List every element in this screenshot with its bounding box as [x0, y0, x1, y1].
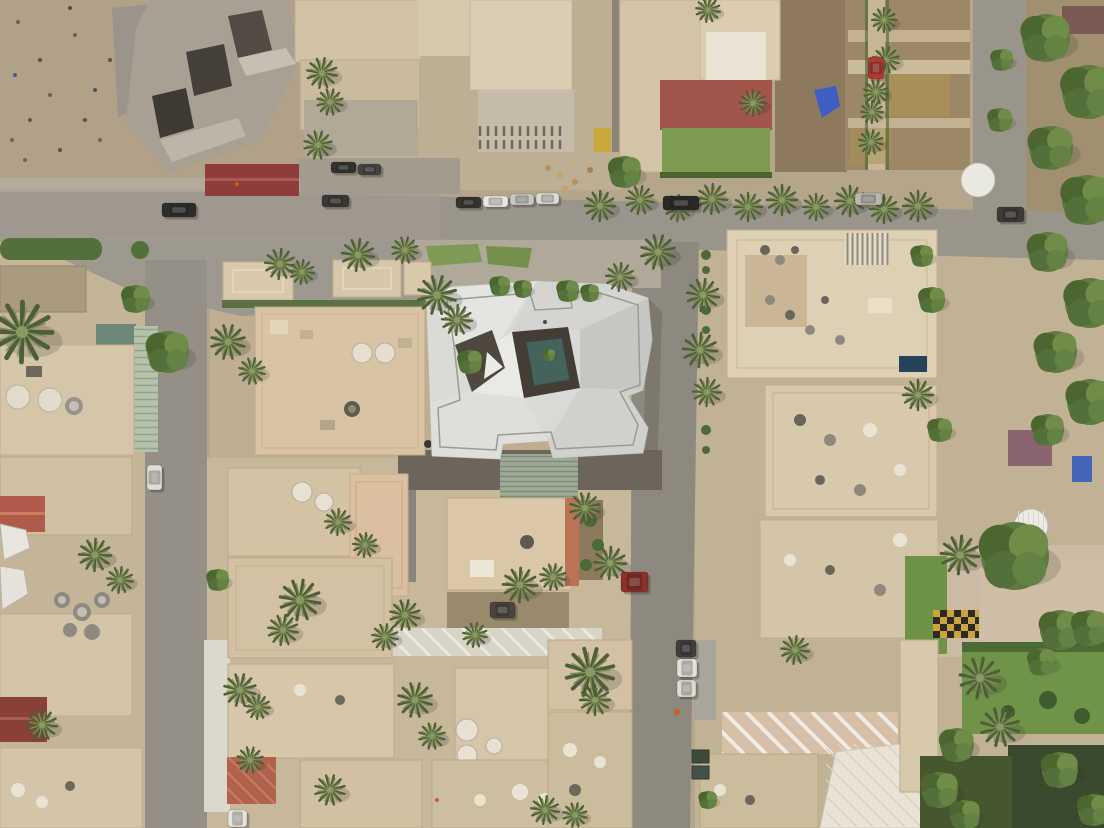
hedge-row-junction	[0, 238, 102, 260]
villa-j-whitebox	[470, 560, 494, 577]
car-darkred	[621, 572, 651, 595]
car-silver	[510, 194, 537, 208]
villa-k-tank-1	[456, 719, 478, 741]
car-white	[483, 196, 511, 210]
car-dark	[676, 640, 699, 660]
suv-silver	[855, 193, 885, 208]
water-tank-a	[6, 385, 30, 409]
villa-c-lawn	[662, 128, 770, 174]
villa-j-dish	[520, 535, 534, 549]
villa-k-tank-3	[486, 738, 502, 754]
villa-o-tank-1	[292, 482, 312, 502]
car-black	[162, 203, 199, 220]
car-white	[147, 465, 165, 493]
car-dark	[322, 195, 352, 210]
suv-dark	[997, 207, 1027, 225]
dry-grass-patch-1	[888, 74, 950, 116]
red-roof-shed-ridge	[205, 178, 299, 181]
walled-dirt-plot	[0, 266, 86, 312]
villa-h-dish-inner	[348, 405, 356, 413]
villa-c-hedge	[660, 172, 772, 178]
villa-c-terrace	[706, 32, 766, 80]
pink-roof-west-ridge	[0, 512, 45, 515]
checkered-mat	[933, 610, 979, 638]
white-walkway-v	[204, 640, 230, 812]
car-dark	[331, 162, 359, 176]
car-white	[677, 659, 700, 680]
car-courtyard	[490, 602, 518, 621]
layer-landmark	[426, 281, 662, 459]
villa-h-stair	[270, 320, 288, 334]
villa-p-stair	[868, 298, 892, 313]
aerial-photo	[0, 0, 1104, 828]
ac-unit-w1	[26, 366, 42, 377]
leafy-tree	[1071, 610, 1104, 646]
dirt-lot-vacant	[775, 0, 847, 172]
office-building	[470, 0, 572, 90]
car-gray	[358, 164, 384, 178]
car-red	[868, 57, 887, 82]
villa-p-courtyard	[745, 255, 807, 327]
satellite-dish-w1-inner	[69, 401, 79, 411]
villa-h-ac-2	[320, 420, 335, 430]
boundary-wall	[612, 0, 619, 152]
dumpster-1	[692, 750, 709, 763]
road-sheen	[0, 190, 440, 242]
leafy-tree	[1060, 175, 1104, 225]
car-dark	[456, 197, 484, 211]
villa-o-tank-2	[315, 493, 333, 511]
water-tank-b	[38, 388, 62, 412]
villa-h-ac-3	[398, 338, 412, 348]
lawn-strip-west	[905, 556, 947, 654]
villa-h-ac-1	[300, 330, 313, 339]
villa-p-roof-pool	[899, 356, 927, 372]
yellow-sign	[594, 128, 611, 152]
villa-h-tank-1	[352, 343, 372, 363]
courtyard-pool	[526, 338, 570, 386]
villa-p-pergola-slats	[848, 233, 888, 265]
villa-h-tank-2	[375, 343, 395, 363]
dumpster-2	[692, 766, 709, 779]
hedge-bush	[131, 241, 149, 259]
white-canopy	[961, 163, 995, 197]
bldg-nw-a	[295, 0, 421, 62]
suv-black	[663, 196, 702, 213]
blue-tarp-2	[1072, 456, 1092, 482]
car-white	[228, 810, 250, 828]
car-white	[677, 680, 699, 700]
aerial-photo-canvas	[0, 0, 1104, 828]
car-white	[536, 193, 562, 207]
